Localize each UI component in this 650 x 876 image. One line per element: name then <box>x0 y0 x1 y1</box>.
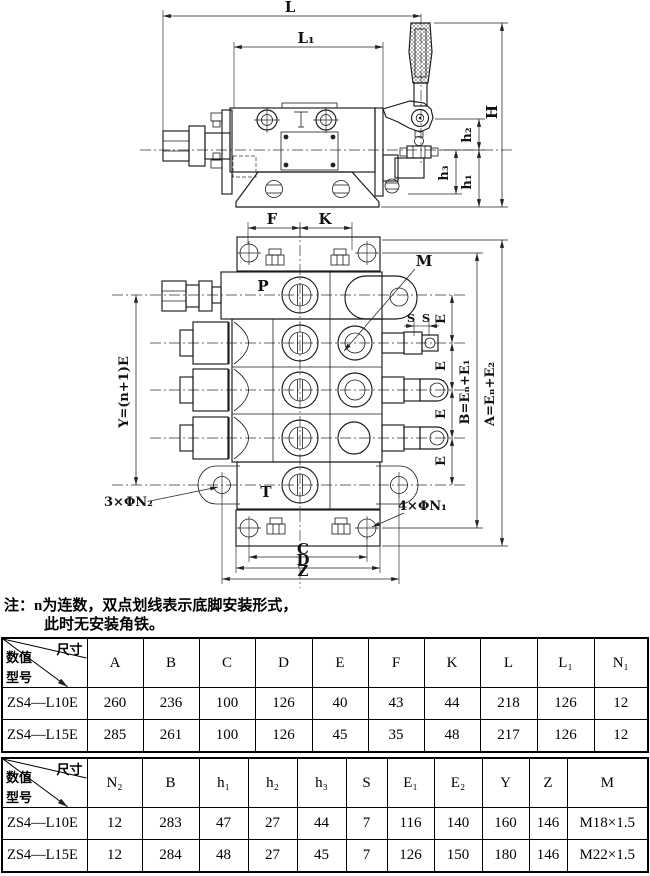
value-cell: 100 <box>199 720 255 753</box>
header-cell: F <box>368 638 424 688</box>
corner-label-value: 数值 <box>6 651 32 664</box>
value-cell: 27 <box>248 808 297 840</box>
value-cell: 40 <box>312 688 368 720</box>
hex-bolt <box>267 518 350 534</box>
value-cell: 283 <box>142 808 199 840</box>
dim-label-E: E <box>434 409 449 419</box>
header-cell: B <box>143 638 199 688</box>
corner-label-model: 型号 <box>6 791 32 804</box>
dim-label-h3: h₃ <box>437 165 452 180</box>
model-cell: ZS4—L10E <box>2 688 87 720</box>
note-line-2: 此时无安装角铁。 <box>4 616 297 635</box>
dim-label-F: F <box>267 210 278 228</box>
value-cell: 43 <box>368 688 424 720</box>
value-cell: M18×1.5 <box>567 808 648 840</box>
dim-label-E: E <box>434 361 449 371</box>
value-cell: 7 <box>346 840 387 873</box>
value-cell: 47 <box>199 808 248 840</box>
plan-view: F K P T M S S E E E E Y=(n+1)E B=Eₙ+ <box>104 210 508 588</box>
dim-label-K: K <box>318 210 332 228</box>
corner-label-model: 型号 <box>6 671 32 684</box>
value-cell: 45 <box>297 840 346 873</box>
page: L L₁ H h₂ h₃ h₁ <box>0 0 650 876</box>
header-cell: C <box>199 638 255 688</box>
header-cell: N₁ <box>594 638 648 688</box>
dim-label-S2: S <box>422 311 430 325</box>
value-cell: 7 <box>346 808 387 840</box>
value-cell: 285 <box>87 720 143 753</box>
dim-label-h1: h₁ <box>460 174 475 189</box>
value-cell: 217 <box>480 720 537 753</box>
thread-label-M: M <box>416 252 433 270</box>
port-label-P: P <box>257 277 268 295</box>
spool-caps <box>180 322 249 459</box>
header-cell: A <box>87 638 143 688</box>
dim-label-A: A=Eₙ+E₂ <box>483 362 498 427</box>
value-cell: 44 <box>297 808 346 840</box>
table-row: ZS4—L10E 260 236 100 126 40 43 44 218 12… <box>2 688 648 720</box>
header-cell: D <box>255 638 312 688</box>
value-cell: 126 <box>537 720 594 753</box>
value-cell: 126 <box>387 840 434 873</box>
spool-ends <box>382 332 448 451</box>
dimension-table-1: 尺寸 数值 型号 A B C D E F K L L₁ N₁ ZS4—L10E … <box>1 637 649 753</box>
table-row: ZS4—L15E 285 261 100 126 45 35 48 217 12… <box>2 720 648 753</box>
dim-label-h2: h₂ <box>460 127 475 142</box>
corner-label-dimension: 尺寸 <box>56 763 82 776</box>
header-cell: E₁ <box>387 758 434 808</box>
value-cell: M22×1.5 <box>567 840 648 873</box>
header-cell: K <box>424 638 480 688</box>
dim-label-L: L <box>285 0 296 16</box>
value-cell: 27 <box>248 840 297 873</box>
dimension-table-2: 尺寸 数值 型号 N₂ B h₁ h₂ h₃ S E₁ E₂ Y Z M ZS4… <box>1 757 649 873</box>
value-cell: 35 <box>368 720 424 753</box>
value-cell: 146 <box>529 840 567 873</box>
dim-label-Y: Y=(n+1)E <box>117 356 132 429</box>
value-cell: 12 <box>594 720 648 753</box>
value-cell: 236 <box>143 688 199 720</box>
holes-label-N1: 4×ΦN₁ <box>398 499 447 514</box>
header-cell: Z <box>529 758 567 808</box>
drawing-note: 注：n为连数，双点划线表示底脚安装形式， 此时无安装角铁。 <box>4 597 297 635</box>
value-cell: 45 <box>312 720 368 753</box>
hex-bolt <box>266 249 349 265</box>
table-row: ZS4—L10E 12 283 47 27 44 7 116 140 160 1… <box>2 808 648 840</box>
note-line-1: 注：n为连数，双点划线表示底脚安装形式， <box>4 597 297 616</box>
header-cell: h₂ <box>248 758 297 808</box>
engineering-drawing: L L₁ H h₂ h₃ h₁ <box>0 0 650 596</box>
dim-label-E: E <box>434 314 449 324</box>
value-cell: 284 <box>142 840 199 873</box>
table-corner-cell: 尺寸 数值 型号 <box>2 758 87 808</box>
side-view: L L₁ H h₂ h₃ h₁ <box>140 0 512 207</box>
header-cell: N₂ <box>87 758 142 808</box>
value-cell: 260 <box>87 688 143 720</box>
value-cell: 160 <box>482 808 529 840</box>
header-cell: h₁ <box>199 758 248 808</box>
value-cell: 48 <box>199 840 248 873</box>
dim-label-S1: S <box>407 311 415 325</box>
value-cell: 261 <box>143 720 199 753</box>
port-label-T: T <box>260 483 272 501</box>
corner-label-dimension: 尺寸 <box>56 643 82 656</box>
value-cell: 126 <box>255 720 312 753</box>
table-row: ZS4—L15E 12 284 48 27 45 7 126 150 180 1… <box>2 840 648 873</box>
value-cell: 218 <box>480 688 537 720</box>
holes-label-N2: 3×ΦN₂ <box>104 495 153 510</box>
model-cell: ZS4—L15E <box>2 720 87 753</box>
header-cell: L <box>480 638 537 688</box>
header-cell: M <box>567 758 648 808</box>
dim-label-Z: Z <box>298 562 309 580</box>
value-cell: 126 <box>537 688 594 720</box>
header-cell: Y <box>482 758 529 808</box>
value-cell: 48 <box>424 720 480 753</box>
value-cell: 100 <box>199 688 255 720</box>
value-cell: 12 <box>87 840 142 873</box>
corner-label-value: 数值 <box>6 771 32 784</box>
value-cell: 180 <box>482 840 529 873</box>
header-cell: L₁ <box>537 638 594 688</box>
value-cell: 146 <box>529 808 567 840</box>
value-cell: 126 <box>255 688 312 720</box>
value-cell: 44 <box>424 688 480 720</box>
value-cell: 116 <box>387 808 434 840</box>
header-cell: S <box>346 758 387 808</box>
dim-label-B: B=Eₙ+E₁ <box>458 359 473 424</box>
header-cell: E <box>312 638 368 688</box>
header-cell: E₂ <box>434 758 482 808</box>
dim-label-L1: L₁ <box>297 29 314 47</box>
model-cell: ZS4—L15E <box>2 840 87 873</box>
lever-handle-grip <box>409 23 432 83</box>
value-cell: 140 <box>434 808 482 840</box>
dim-label-H: H <box>483 105 501 119</box>
model-cell: ZS4—L10E <box>2 808 87 840</box>
table-corner-cell: 尺寸 数值 型号 <box>2 638 87 688</box>
value-cell: 12 <box>87 808 142 840</box>
header-cell: h₃ <box>297 758 346 808</box>
value-cell: 12 <box>594 688 648 720</box>
dim-label-E: E <box>434 456 449 466</box>
header-cell: B <box>142 758 199 808</box>
value-cell: 150 <box>434 840 482 873</box>
